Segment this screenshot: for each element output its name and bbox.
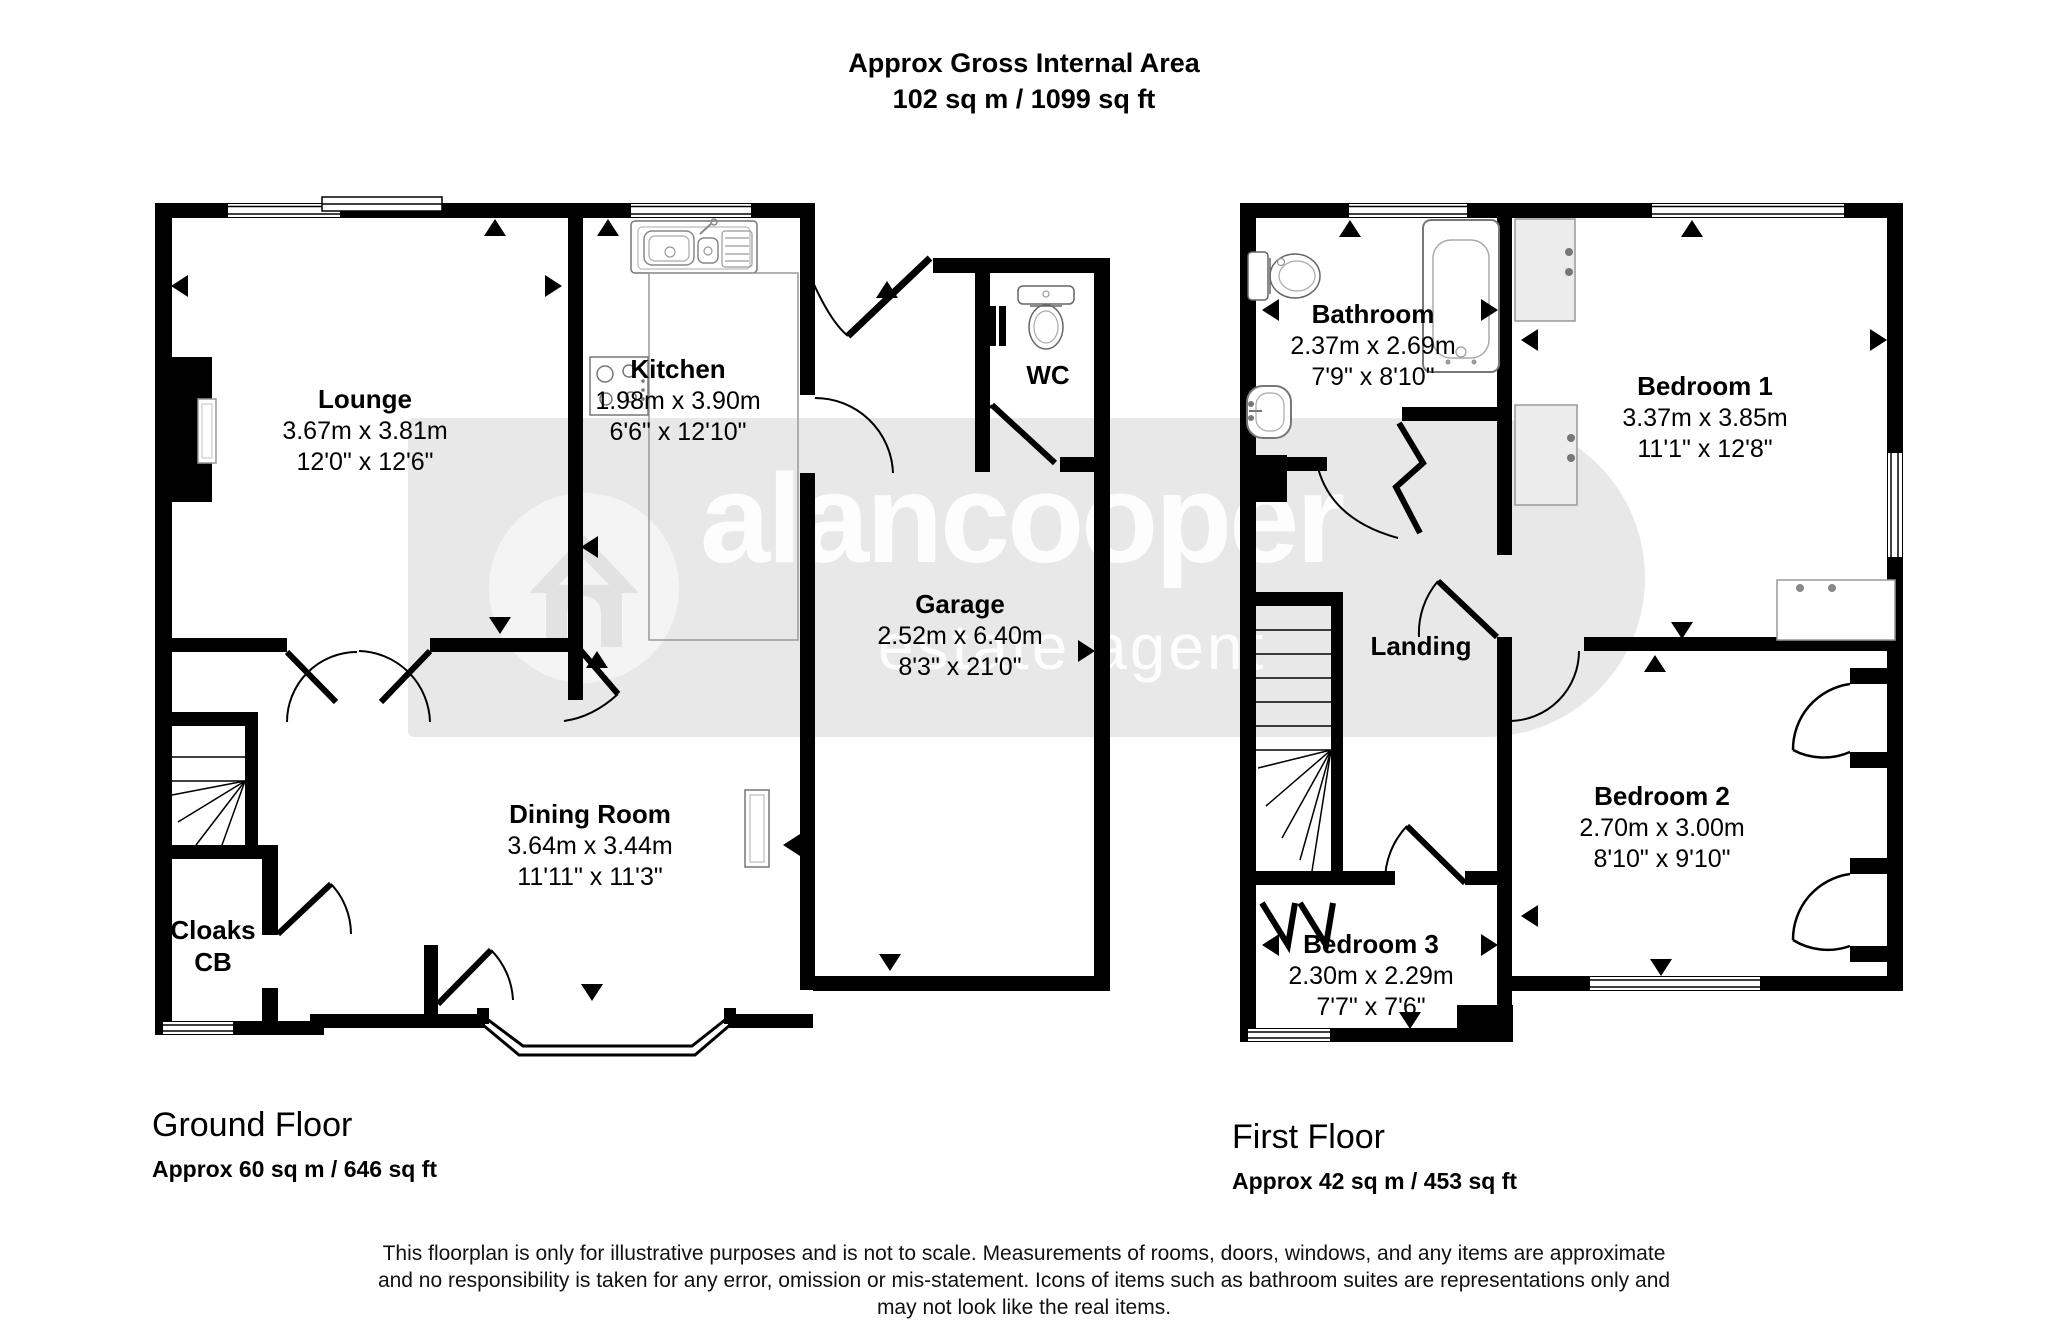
wc-door	[992, 405, 1055, 463]
disclaimer-line3: may not look like the real items.	[0, 1296, 2048, 1320]
first-floor-stairs-icon	[1256, 630, 1331, 871]
disclaimer-line2: and no responsibility is taken for any e…	[0, 1269, 2048, 1293]
cloaks-window	[163, 1022, 233, 1034]
room-label-kitchen: Kitchen 1.98m x 3.90m 6'6" x 12'10"	[595, 354, 760, 448]
bay-window	[483, 1016, 730, 1055]
closet-doors	[1793, 684, 1850, 750]
kitchen-window	[631, 204, 751, 217]
room-label-garage: Garage 2.52m x 6.40m 8'3" x 21'0"	[877, 589, 1042, 683]
room-label-lounge: Lounge 3.67m x 3.81m 12'0" x 12'6"	[282, 384, 447, 478]
bathroom-door	[1396, 423, 1423, 533]
wc-radiator-icon	[989, 306, 1006, 346]
ground-floor-area: Approx 60 sq m / 646 sq ft	[152, 1156, 437, 1183]
bedroom3-window	[1248, 1029, 1330, 1041]
ground-floor-stairs-icon	[172, 757, 245, 845]
room-label-bedroom-1: Bedroom 1 3.37m x 3.85m 11'1" x 12'8"	[1622, 371, 1787, 465]
bedroom1-window	[1652, 204, 1844, 217]
bedroom1-side-window	[1888, 453, 1902, 557]
room-label-bedroom-2: Bedroom 2 2.70m x 3.00m 8'10" x 9'10"	[1579, 781, 1744, 875]
room-label-cloaks: Cloaks CB	[170, 915, 255, 979]
kitchen-counter	[649, 273, 798, 640]
dining-door	[438, 950, 491, 1004]
bedroom2-window	[1590, 977, 1760, 990]
hall-door-arc	[815, 398, 893, 473]
room-label-bedroom-3: Bedroom 3 2.30m x 2.29m 7'7" x 7'6"	[1288, 929, 1453, 1023]
wc-toilet-icon	[1018, 286, 1074, 349]
first-floor-caption: First Floor	[1232, 1118, 1385, 1157]
first-floor-area: Approx 42 sq m / 453 sq ft	[1232, 1168, 1517, 1195]
fireplace-icon	[198, 399, 216, 463]
lounge-double-door	[287, 652, 336, 702]
dresser-icon	[1777, 580, 1895, 640]
room-label-landing: Landing	[1370, 631, 1471, 663]
bedroom3-door	[1407, 826, 1465, 883]
bathroom-toilet-icon	[1248, 252, 1320, 300]
bedroom1-door	[1438, 581, 1497, 637]
radiator-icon	[745, 790, 769, 867]
page-title-line2: 102 sq m / 1099 sq ft	[0, 84, 2048, 115]
bathroom-sink-icon	[1247, 386, 1291, 438]
ground-floor-caption: Ground Floor	[152, 1106, 352, 1145]
disclaimer-line1: This floorplan is only for illustrative …	[0, 1242, 2048, 1266]
cloaks-door	[278, 884, 331, 934]
bathroom-window	[1349, 204, 1467, 217]
floorplan-page: alancooper estate agent	[0, 0, 2048, 1344]
room-label-dining-room: Dining Room 3.64m x 3.44m 11'11" x 11'3"	[507, 799, 672, 893]
room-label-wc: WC	[1026, 360, 1069, 392]
kitchen-sink-icon	[631, 219, 757, 273]
wardrobe-icon	[1515, 219, 1577, 505]
room-label-bathroom: Bathroom 2.37m x 2.69m 7'9" x 8'10"	[1290, 299, 1455, 393]
page-title-line1: Approx Gross Internal Area	[0, 48, 2048, 79]
